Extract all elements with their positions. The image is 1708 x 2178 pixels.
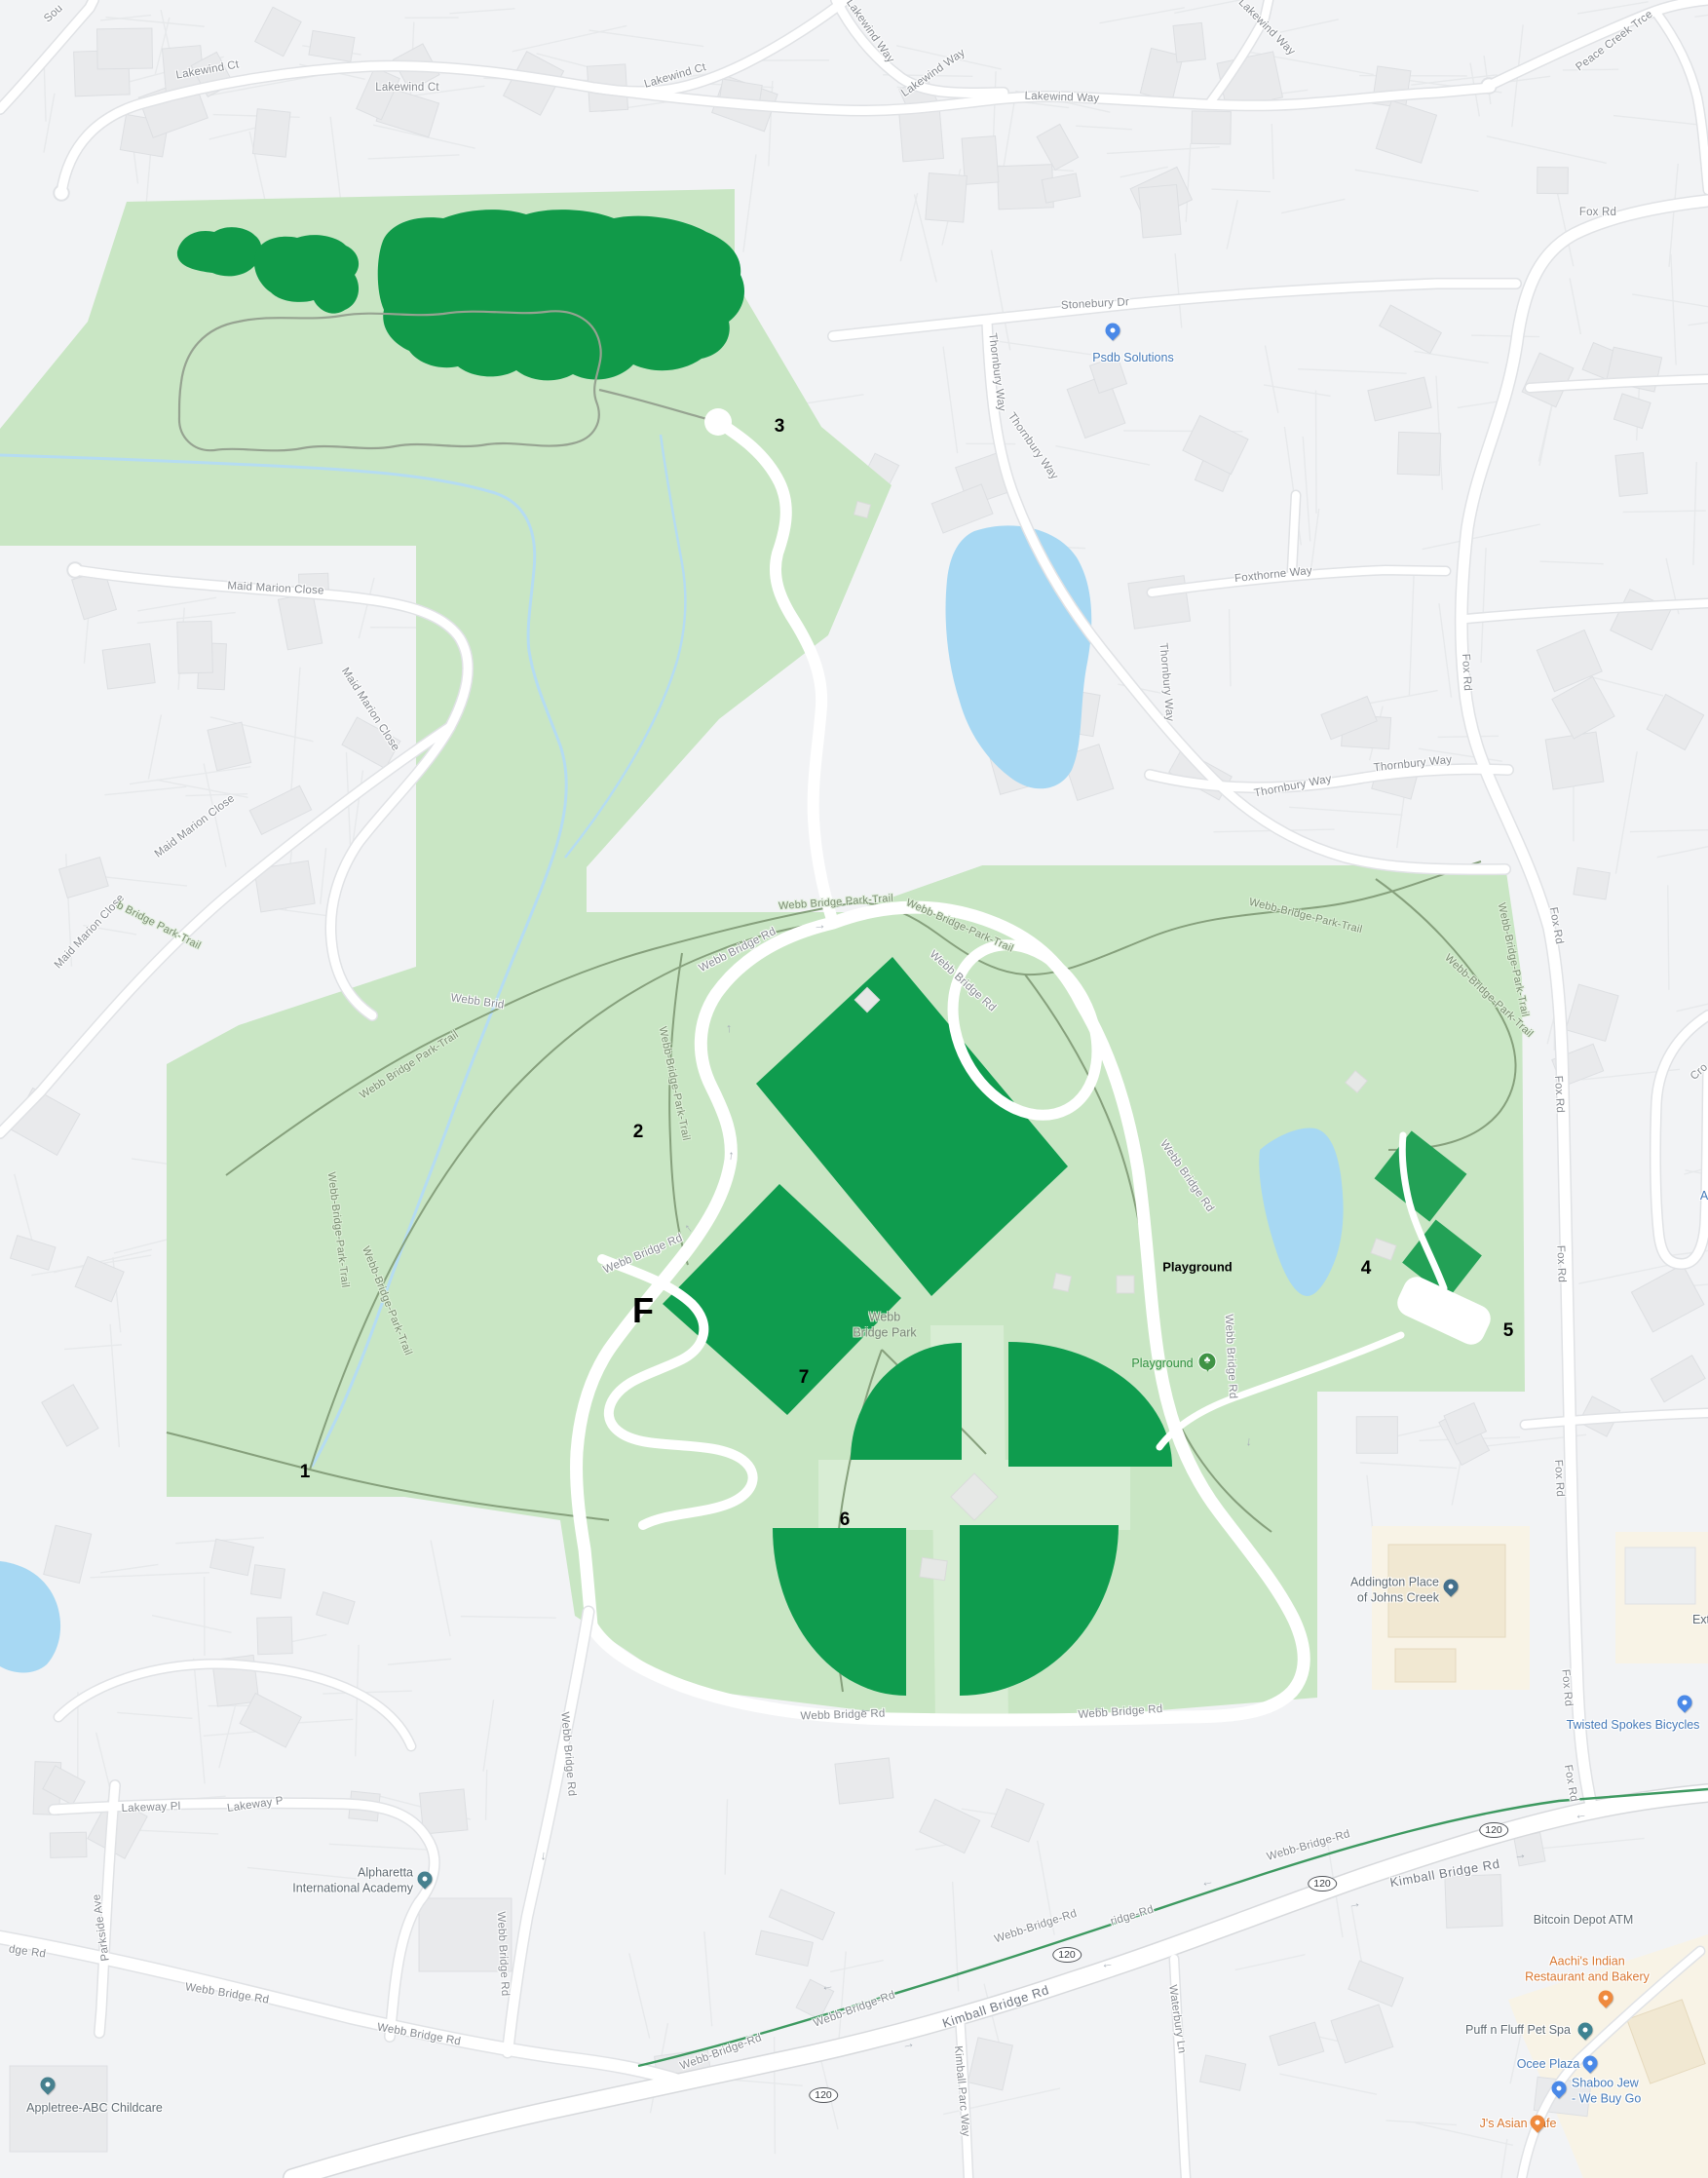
- road-label-fox-rd: Fox Rd: [1552, 1460, 1566, 1498]
- road-label-kimball-parc-way: Kimball Parc Way: [952, 2045, 971, 2137]
- trail-label: b Bridge Park-Trail: [115, 899, 203, 952]
- overlay-marker-f: F: [632, 1290, 654, 1331]
- poi-label-twisted-spokes-bicycles[interactable]: Twisted Spokes Bicycles: [1567, 1718, 1700, 1734]
- road-label-maid-marion-close: Maid Marion Close: [153, 792, 238, 860]
- road-label-webb-bridge-rd: Webb Bridge Rd: [698, 926, 778, 974]
- overlay-marker-7: 7: [799, 1367, 810, 1389]
- road-label-fox-rd: Fox Rd: [1562, 1764, 1579, 1803]
- poi-label-line: Twisted Spokes Bicycles: [1567, 1718, 1700, 1734]
- trail-label: Webb-Bridge-Park-Trail: [657, 1025, 693, 1141]
- road-label-webb-bridge-rd: Webb-Bridge-Rd: [1266, 1828, 1351, 1863]
- poi-label-line: Bitcoin Depot ATM: [1534, 1913, 1634, 1929]
- poi-label-line: Ocee Plaza: [1517, 2057, 1580, 2073]
- restaurant-pin-icon[interactable]: [1595, 1987, 1615, 2007]
- trail-label: Webb Bridge Park-Trail: [358, 1029, 461, 1101]
- trail-label: Webb-Bridge-Park-Trail: [904, 897, 1015, 954]
- road-label-fox-rd: Fox Rd: [1552, 1076, 1566, 1114]
- road-label-maid-marion-close: Maid Marion Close: [227, 580, 324, 596]
- poi-label-line: Puff n Fluff Pet Spa: [1465, 2023, 1571, 2039]
- road-label-lakeway-p: Lakeway P: [226, 1795, 284, 1815]
- one-way-arrow-icon: →: [859, 1706, 872, 1721]
- road-label-kimball-bridge-rd: Kimball Bridge Rd: [1388, 1856, 1500, 1891]
- shopping-bag-pin-icon[interactable]: [1674, 1692, 1694, 1712]
- map-labels-layer: SouLakewind CtLakewind CtLakewind CtLake…: [0, 0, 1708, 2178]
- one-way-arrow-icon: →: [1100, 1959, 1115, 1975]
- one-way-arrow-icon: →: [1200, 1877, 1216, 1893]
- road-label-stonebury-dr: Stonebury Dr: [1061, 296, 1130, 312]
- road-label-parkside-ave: Parkside Ave: [91, 1893, 112, 1962]
- overlay-marker-6: 6: [840, 1509, 851, 1531]
- road-label-webb-brid: Webb Brid: [450, 992, 505, 1012]
- road-label-webb-bridge-rd: Webb Bridge Rd: [184, 1981, 270, 2006]
- road-label-peace-creek-trce: Peace Creek Trce: [1574, 9, 1654, 74]
- poi-label-bitcoin-depot-atm[interactable]: Bitcoin Depot ATM: [1534, 1913, 1634, 1929]
- poi-label-line: - We Buy Go: [1572, 2091, 1641, 2107]
- road-label-lakewind-way: Lakewind Way: [899, 47, 968, 99]
- poi-label-ext[interactable]: Ext: [1692, 1613, 1708, 1628]
- road-label-fox-rd: Fox Rd: [1554, 1245, 1567, 1283]
- park-name-line: Webb: [853, 1310, 916, 1325]
- playground-tree-icon[interactable]: ♣: [1198, 1353, 1217, 1371]
- one-way-arrow-icon: →: [721, 1149, 737, 1163]
- park-name-label: WebbBridge Park: [853, 1310, 916, 1340]
- road-label-lakewind-ct: Lakewind Ct: [175, 58, 241, 81]
- road-label-foxthorne-way: Foxthorne Way: [1234, 565, 1313, 585]
- road-label-thornbury-way: Thornbury Way: [1253, 773, 1333, 799]
- road-label-webb-bridge-rd: Webb-Bridge-Rd: [678, 2032, 763, 2072]
- one-way-arrow-icon: →: [1347, 1894, 1362, 1911]
- one-way-arrow-icon: →: [820, 1981, 836, 1998]
- shopping-bag-pin-icon[interactable]: [1102, 320, 1122, 340]
- poi-label-a[interactable]: A: [1700, 1189, 1708, 1204]
- road-label-sou: Sou: [42, 2, 65, 24]
- road-label-lakewind-way: Lakewind Way: [1024, 91, 1099, 105]
- shopping-pin-icon[interactable]: [1579, 2052, 1600, 2073]
- road-label-webb-bridge-rd: Webb Bridge Rd: [1078, 1703, 1163, 1721]
- road-label-thornbury-way: Thornbury Way: [1158, 642, 1176, 722]
- route-shield-120: 120: [1479, 1822, 1508, 1838]
- overlay-marker-1: 1: [300, 1462, 311, 1483]
- road-label-webb-bridge-rd: Webb Bridge Rd: [558, 1711, 578, 1797]
- road-label-webb-bridge-rd: Webb Bridge Rd: [495, 1911, 512, 1996]
- playground-label: Playground: [1131, 1356, 1193, 1370]
- route-shield-120: 120: [1052, 1947, 1082, 1963]
- road-label-maid-marion-close: Maid Marion Close: [339, 666, 401, 753]
- one-way-arrow-icon: →: [538, 1850, 553, 1863]
- road-label-thornbury-way: Thornbury Way: [1006, 410, 1060, 481]
- poi-label-line: Restaurant and Bakery: [1525, 1969, 1650, 1985]
- graduation-cap-pin-icon[interactable]: [414, 1868, 435, 1889]
- road-label-lakewind-way: Lakewind Way: [844, 0, 896, 65]
- trail-label: Webb-Bridge-Park-Trail: [1248, 897, 1364, 936]
- road-label-webb-bridge-rd: Webb Bridge Rd: [1158, 1138, 1216, 1214]
- trail-label: Webb-Bridge-Park-Trail: [360, 1244, 414, 1356]
- one-way-arrow-icon: →: [1092, 1703, 1106, 1718]
- one-way-arrow-icon: →: [1574, 1810, 1588, 1826]
- road-label-maid-marion-close: Maid Marion Close: [53, 893, 127, 972]
- one-way-arrow-icon: →: [813, 917, 827, 934]
- road-label-ridge-rd: ridge-Rd: [1109, 1904, 1155, 1929]
- overlay-marker-3: 3: [775, 416, 785, 438]
- graduation-cap-pin-icon[interactable]: [37, 2074, 57, 2094]
- map-canvas[interactable]: SouLakewind CtLakewind CtLakewind CtLake…: [0, 0, 1708, 2178]
- one-way-arrow-icon: →: [719, 1022, 735, 1036]
- poi-label-line: Shaboo Jew: [1572, 2076, 1641, 2091]
- route-shield-120: 120: [1308, 1876, 1337, 1891]
- overlay-marker-4: 4: [1361, 1258, 1372, 1280]
- playground-overlay-label: Playground: [1162, 1260, 1233, 1275]
- poi-label-line: International Academy: [292, 1881, 413, 1896]
- one-way-arrow-icon: →: [1243, 1435, 1259, 1449]
- road-label-fox-rd: Fox Rd: [1547, 906, 1565, 945]
- poi-label-addington-place-of-johns-creek[interactable]: Addington Placeof Johns Creek: [1350, 1575, 1439, 1605]
- road-label-webb-bridge-rd: Webb-Bridge-Rd: [993, 1908, 1079, 1946]
- road-label-thornbury-way: Thornbury Way: [1373, 754, 1453, 774]
- road-label-webb-bridge-rd: Webb Bridge Rd: [376, 2022, 462, 2048]
- poi-label-line: A: [1700, 1189, 1708, 1204]
- poi-label-line: of Johns Creek: [1350, 1590, 1439, 1606]
- park-name-line: Bridge Park: [853, 1325, 916, 1341]
- poi-label-ocee-plaza[interactable]: Ocee Plaza: [1517, 2057, 1580, 2073]
- road-label-lakeway-pl: Lakeway Pl: [121, 1801, 180, 1815]
- overlay-marker-2: 2: [633, 1122, 644, 1143]
- road-label-webb-bridge-rd: Webb Bridge Rd: [1223, 1314, 1239, 1398]
- pet-pin-icon[interactable]: [1575, 2019, 1595, 2040]
- poi-label-line: Appletree-ABC Childcare: [26, 2101, 163, 2117]
- road-label-kimball-bridge-rd: Kimball Bridge Rd: [940, 1982, 1050, 2031]
- poi-label-line: Ext: [1692, 1613, 1708, 1628]
- poi-label-line: Psdb Solutions: [1092, 351, 1173, 366]
- road-label-fox-rd: Fox Rd: [1559, 1668, 1574, 1706]
- trail-label: Webb-Bridge-Park-Trail: [325, 1171, 351, 1288]
- poi-label-shaboo-jew-we-buy-go[interactable]: Shaboo Jew- We Buy Go: [1572, 2076, 1641, 2106]
- overlay-marker-5: 5: [1503, 1320, 1514, 1342]
- road-label-webb-bridge-rd: Webb Bridge Rd: [800, 1707, 885, 1722]
- poi-label-psdb-solutions[interactable]: Psdb Solutions: [1092, 351, 1173, 366]
- road-label-lakewind-ct: Lakewind Ct: [643, 61, 707, 91]
- trail-label: Webb Bridge Park-Trail: [778, 893, 894, 912]
- road-label-fox-rd: Fox Rd: [1460, 654, 1473, 692]
- road-label-lakewind-ct: Lakewind Ct: [375, 82, 438, 94]
- road-label-cro: Cro: [1689, 1061, 1708, 1083]
- road-label-dge-rd: dge Rd: [8, 1943, 47, 1960]
- route-shield-120: 120: [809, 2087, 838, 2103]
- poi-label-puff-n-fluff-pet-spa[interactable]: Puff n Fluff Pet Spa: [1465, 2023, 1571, 2039]
- poi-label-appletree-abc-childcare[interactable]: Appletree-ABC Childcare: [26, 2101, 163, 2117]
- road-label-waterbury-ln: Waterbury Ln: [1166, 1984, 1188, 2054]
- poi-label-line: Aachi's Indian: [1525, 1954, 1650, 1969]
- poi-label-line: Alpharetta: [292, 1865, 413, 1881]
- poi-label-line: Addington Place: [1350, 1575, 1439, 1590]
- road-label-thornbury-way: Thornbury Way: [986, 332, 1007, 412]
- road-label-lakewind-way: Lakewind Way: [1236, 0, 1298, 57]
- one-way-arrow-icon: →: [900, 2035, 916, 2051]
- shopping-bag-pin-icon[interactable]: [1548, 2078, 1569, 2098]
- lodging-pin-icon[interactable]: [1440, 1576, 1461, 1596]
- road-label-webb-bridge-rd: Webb Bridge Rd: [928, 948, 999, 1013]
- road-label-webb-bridge-rd: Webb Bridge Rd: [602, 1232, 685, 1276]
- poi-label-alpharetta-international-academy[interactable]: AlpharettaInternational Academy: [292, 1865, 413, 1895]
- poi-label-aachi-s-indian-restaurant-and-bakery[interactable]: Aachi's IndianRestaurant and Bakery: [1525, 1954, 1650, 1984]
- one-way-arrow-icon: →: [1512, 1846, 1527, 1862]
- road-label-fox-rd: Fox Rd: [1579, 207, 1616, 218]
